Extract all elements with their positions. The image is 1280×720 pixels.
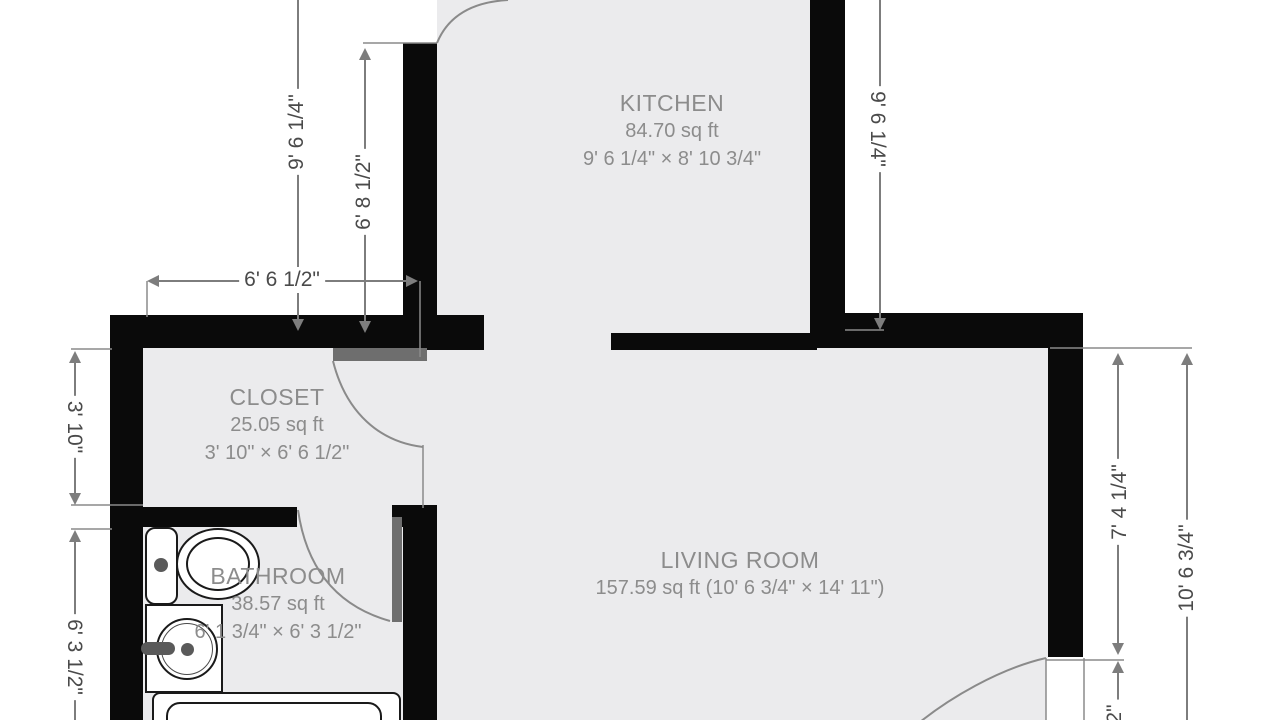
dim-bathroom-depth: 6' 3 1/2" xyxy=(61,614,87,700)
bathtub-inner-rim xyxy=(166,702,382,720)
floor-plan: KITCHEN 84.70 sq ft 9' 6 1/4" × 8' 10 3/… xyxy=(0,0,1280,720)
dim-living-wall: 7' 4 1/4" xyxy=(1107,459,1133,545)
dim-closet-depth: 3' 10" xyxy=(61,396,87,458)
bathroom-name: BATHROOM xyxy=(195,562,362,590)
living-room-label: LIVING ROOM 157.59 sq ft (10' 6 3/4" × 1… xyxy=(596,546,885,602)
kitchen-name: KITCHEN xyxy=(583,89,761,117)
sink-drain xyxy=(181,643,194,656)
closet-area: 25.05 sq ft xyxy=(205,411,350,439)
dim-kitchen-left: 9' 6 1/4" xyxy=(284,89,310,175)
toilet-flush-button xyxy=(154,558,168,572)
dim-kitchen-right: 9' 6 1/4" xyxy=(864,86,890,172)
dim-living-depth: 10' 6 3/4" xyxy=(1174,519,1200,616)
kitchen-area: 84.70 sq ft xyxy=(583,117,761,145)
living-room-stats: 157.59 sq ft (10' 6 3/4" × 14' 11") xyxy=(596,574,885,602)
closet-size: 3' 10" × 6' 6 1/2" xyxy=(205,439,350,467)
dim-closet-width: 6' 6 1/2" xyxy=(239,267,325,293)
kitchen-label: KITCHEN 84.70 sq ft 9' 6 1/4" × 8' 10 3/… xyxy=(583,89,761,173)
balcony-door-arc xyxy=(908,658,1046,720)
kitchen-size: 9' 6 1/4" × 8' 10 3/4" xyxy=(583,145,761,173)
living-room-name: LIVING ROOM xyxy=(596,546,885,574)
dim-kitchen-inner: 6' 8 1/2" xyxy=(351,149,377,235)
dim-bottom-right-partial: 2" xyxy=(1102,699,1128,720)
kitchen-door-arc xyxy=(437,0,508,43)
closet-name: CLOSET xyxy=(205,383,350,411)
bathroom-label: BATHROOM 38.57 sq ft 6' 1 3/4" × 6' 3 1/… xyxy=(195,562,362,646)
sink-faucet-icon xyxy=(141,642,175,655)
bathroom-size: 6' 1 3/4" × 6' 3 1/2" xyxy=(195,618,362,646)
closet-label: CLOSET 25.05 sq ft 3' 10" × 6' 6 1/2" xyxy=(205,383,350,467)
bathroom-area: 38.57 sq ft xyxy=(195,590,362,618)
